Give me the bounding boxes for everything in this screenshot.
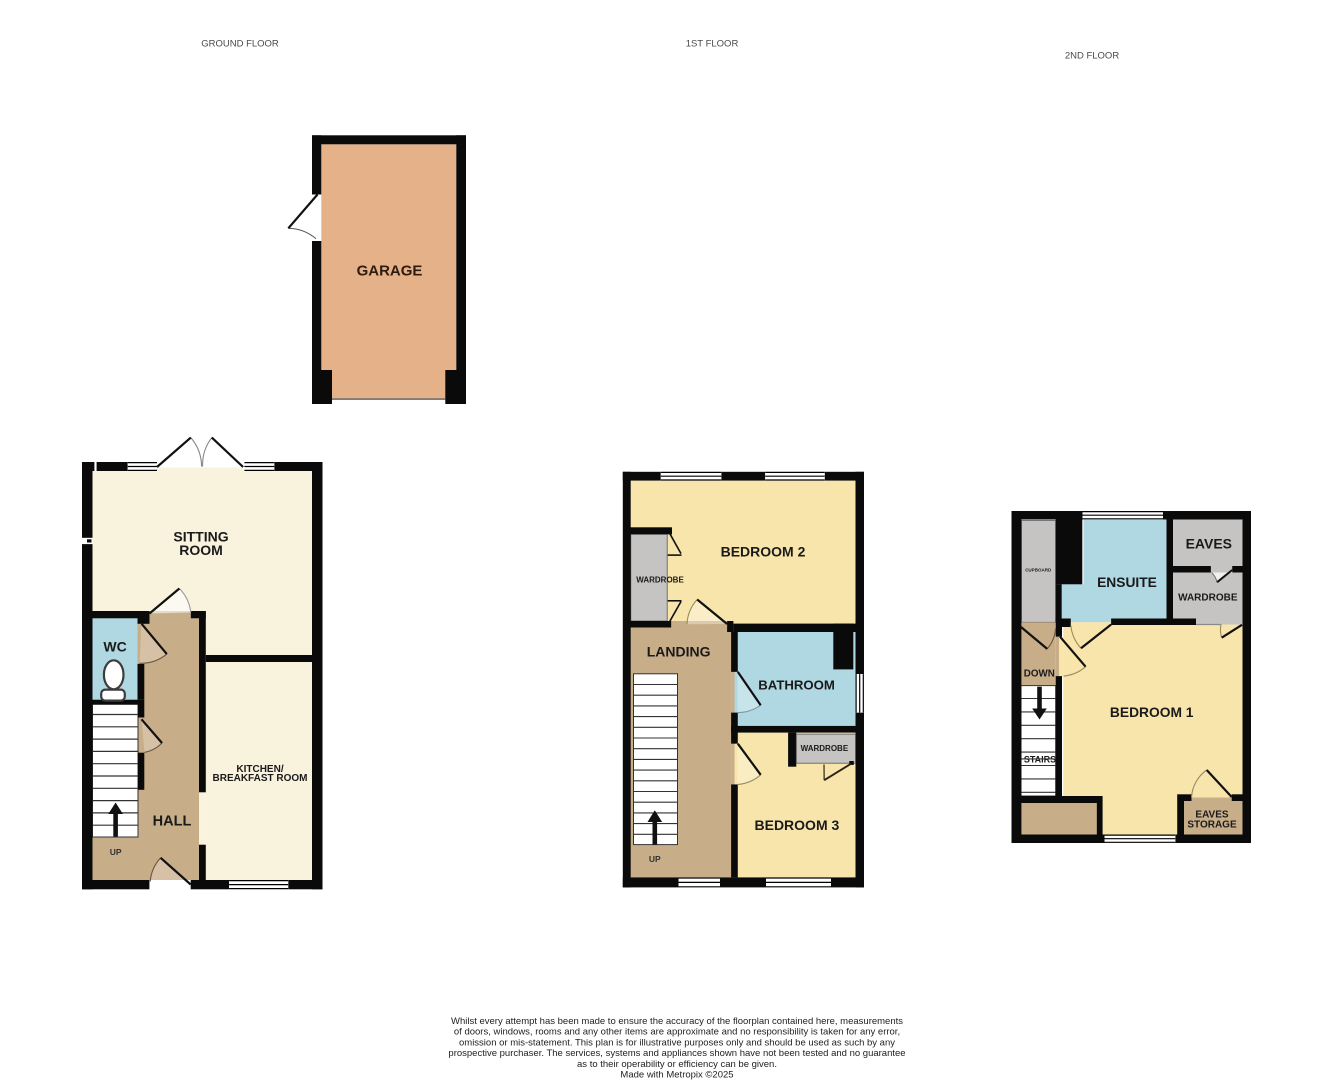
svg-text:prospective purchaser. The ser: prospective purchaser. The services, sys… (448, 1048, 905, 1059)
svg-text:BEDROOM 2: BEDROOM 2 (721, 544, 806, 560)
svg-text:BATHROOM: BATHROOM (758, 678, 835, 693)
svg-text:STAIRS: STAIRS (1024, 755, 1056, 765)
svg-text:as to their operability or eff: as to their operability or efficiency ca… (577, 1059, 777, 1070)
svg-text:BEDROOM 1: BEDROOM 1 (1110, 705, 1194, 720)
svg-text:BEDROOM 3: BEDROOM 3 (755, 817, 840, 833)
svg-text:LANDING: LANDING (647, 644, 711, 660)
svg-text:BREAKFAST ROOM: BREAKFAST ROOM (213, 773, 308, 784)
svg-text:UP: UP (649, 854, 661, 864)
svg-text:WC: WC (103, 639, 126, 655)
svg-text:2ND FLOOR: 2ND FLOOR (1065, 51, 1120, 62)
svg-text:GROUND FLOOR: GROUND FLOOR (201, 39, 279, 50)
svg-text:EAVES: EAVES (1186, 536, 1232, 552)
svg-text:STORAGE: STORAGE (1187, 820, 1237, 831)
svg-text:Whilst every attempt has been: Whilst every attempt has been made to en… (451, 1016, 903, 1027)
svg-text:GARAGE: GARAGE (357, 263, 423, 280)
svg-text:WARDROBE: WARDROBE (801, 744, 849, 753)
svg-text:WARDROBE: WARDROBE (636, 576, 684, 585)
svg-text:HALL: HALL (153, 813, 192, 829)
svg-text:omission or mis-statement. Thi: omission or mis-statement. This plan is … (459, 1037, 895, 1048)
svg-text:WARDROBE: WARDROBE (1178, 593, 1238, 604)
svg-text:CUPBOARD: CUPBOARD (1025, 568, 1052, 573)
svg-text:UP: UP (110, 847, 122, 857)
svg-text:1ST FLOOR: 1ST FLOOR (686, 39, 739, 50)
svg-text:ENSUITE: ENSUITE (1097, 575, 1157, 590)
svg-text:of doors, windows, rooms and a: of doors, windows, rooms and any other i… (454, 1027, 900, 1038)
svg-text:Made with Metropix ©2025: Made with Metropix ©2025 (620, 1070, 733, 1080)
svg-text:DOWN: DOWN (1024, 669, 1055, 680)
svg-text:ROOM: ROOM (179, 542, 223, 558)
